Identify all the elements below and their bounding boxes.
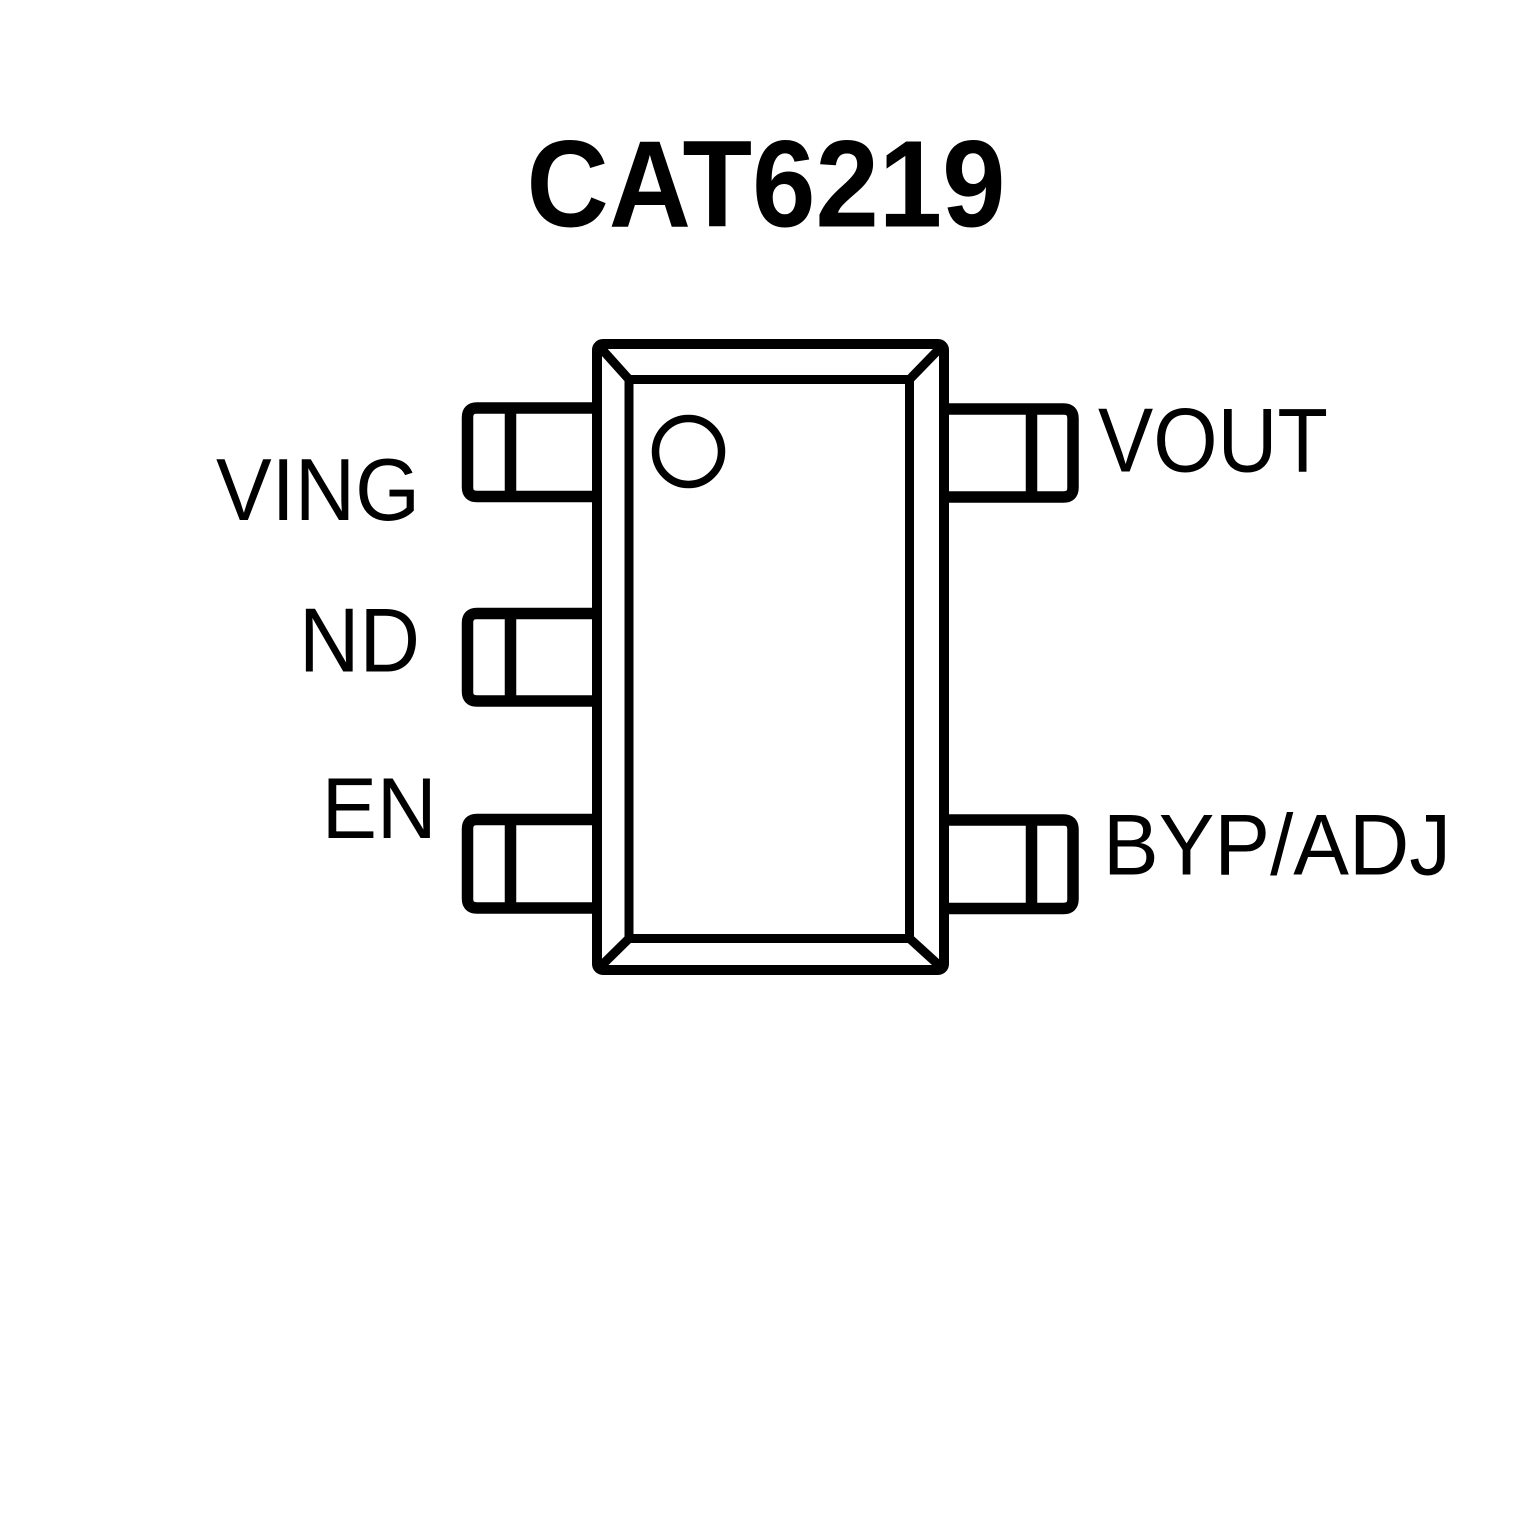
svg-text:VING: VING [216,440,420,539]
svg-text:CAT6219: CAT6219 [527,116,1006,254]
svg-text:ND: ND [299,591,420,692]
svg-text:EN: EN [322,761,437,857]
svg-text:VOUT: VOUT [1098,391,1328,492]
svg-text:BYP/ADJ: BYP/ADJ [1103,798,1451,894]
